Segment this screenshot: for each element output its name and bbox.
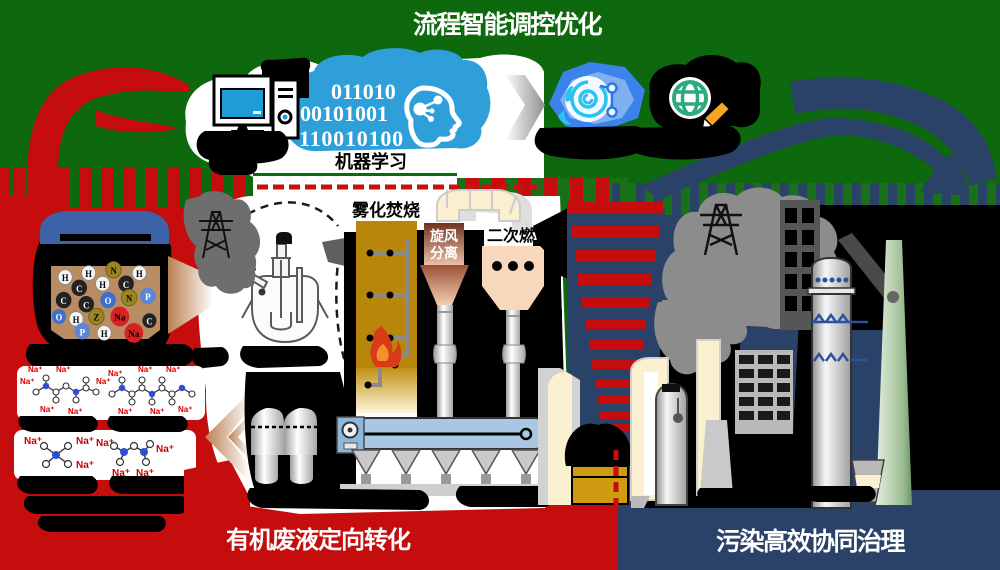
svg-text:H: H xyxy=(136,269,143,279)
svg-text:Na⁺: Na⁺ xyxy=(138,365,152,374)
svg-text:C: C xyxy=(76,284,82,294)
svg-text:Na⁺: Na⁺ xyxy=(156,444,174,455)
svg-text:Na⁺: Na⁺ xyxy=(76,460,94,471)
svg-text:Na⁺: Na⁺ xyxy=(150,407,164,416)
svg-text:Na⁺: Na⁺ xyxy=(96,438,114,449)
svg-text:Na⁺: Na⁺ xyxy=(68,407,82,416)
svg-text:Na⁺: Na⁺ xyxy=(20,377,34,386)
svg-text:机器学习: 机器学习 xyxy=(335,151,407,172)
svg-text:Z: Z xyxy=(94,312,100,322)
svg-text:Na⁺: Na⁺ xyxy=(118,407,132,416)
svg-text:分离: 分离 xyxy=(430,245,458,261)
svg-text:Na⁺: Na⁺ xyxy=(76,436,94,447)
svg-text:流程智能调控优化: 流程智能调控优化 xyxy=(413,10,603,39)
svg-text:Na: Na xyxy=(128,329,140,340)
svg-text:Na⁺: Na⁺ xyxy=(56,365,70,374)
svg-text:Na⁺: Na⁺ xyxy=(24,436,42,447)
svg-text:H: H xyxy=(62,273,69,283)
svg-text:P: P xyxy=(145,292,151,303)
svg-text:O: O xyxy=(105,296,112,306)
svg-text:C: C xyxy=(146,317,152,327)
svg-text:有机废液定向转化: 有机废液定向转化 xyxy=(226,526,411,554)
svg-text:旋风: 旋风 xyxy=(429,228,458,244)
svg-text:H: H xyxy=(99,280,106,290)
svg-text:H: H xyxy=(85,269,92,279)
svg-text:Na⁺: Na⁺ xyxy=(96,377,110,386)
svg-text:Na⁺: Na⁺ xyxy=(178,405,192,414)
svg-text:N: N xyxy=(110,266,117,276)
svg-text:C: C xyxy=(61,296,67,306)
svg-text:C: C xyxy=(123,280,129,290)
svg-text:110010100: 110010100 xyxy=(299,126,404,151)
svg-text:H: H xyxy=(73,315,80,325)
svg-text:雾化焚烧: 雾化焚烧 xyxy=(351,200,420,220)
svg-text:二次燃: 二次燃 xyxy=(487,226,536,245)
svg-text:污染高效协同治理: 污染高效协同治理 xyxy=(716,527,906,556)
svg-text:Na⁺: Na⁺ xyxy=(28,365,42,374)
svg-text:N: N xyxy=(126,294,133,304)
svg-text:C: C xyxy=(83,300,89,310)
svg-text:H: H xyxy=(101,329,108,339)
svg-text:O: O xyxy=(56,312,63,322)
svg-text:Na: Na xyxy=(114,312,126,323)
svg-text:Na⁺: Na⁺ xyxy=(108,369,122,378)
svg-text:00101001: 00101001 xyxy=(300,101,388,126)
svg-text:P: P xyxy=(79,327,85,338)
svg-text:Na⁺: Na⁺ xyxy=(40,405,54,414)
svg-text:Na⁺: Na⁺ xyxy=(166,365,180,374)
